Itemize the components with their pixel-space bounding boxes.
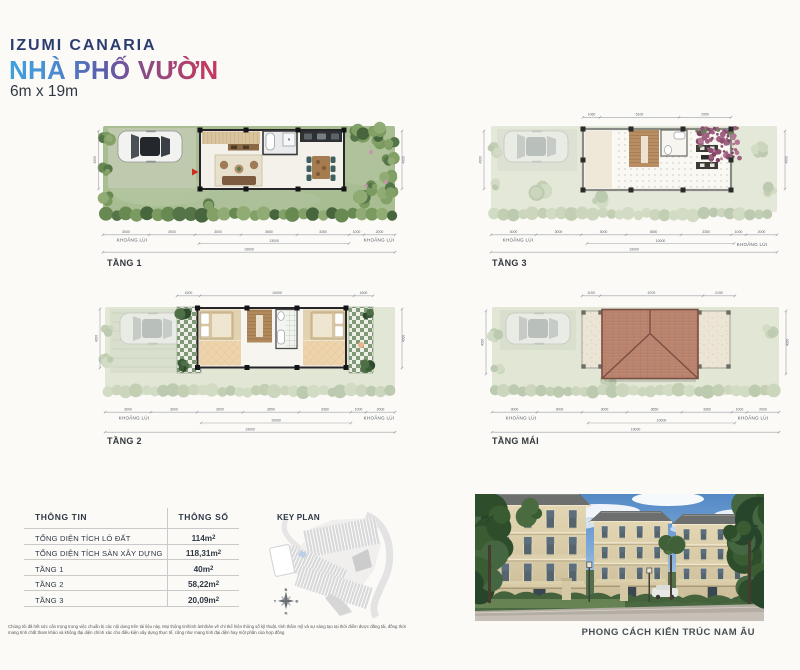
svg-text:3000: 3000 xyxy=(511,408,519,412)
svg-text:3000: 3000 xyxy=(601,408,609,412)
svg-text:1000: 1000 xyxy=(736,408,744,412)
svg-text:4000: 4000 xyxy=(93,156,97,164)
svg-text:13000: 13000 xyxy=(269,239,279,243)
svg-text:10000: 10000 xyxy=(272,291,282,295)
svg-text:3650: 3650 xyxy=(651,408,659,412)
svg-text:1000: 1000 xyxy=(353,230,361,234)
svg-text:2000: 2000 xyxy=(376,230,384,234)
svg-text:KHOẢNG LÙI: KHOẢNG LÙI xyxy=(737,241,768,247)
svg-text:4000: 4000 xyxy=(786,339,790,347)
svg-text:3650: 3650 xyxy=(267,408,275,412)
svg-text:3000: 3000 xyxy=(124,408,132,412)
svg-text:KHOẢNG LÙI: KHOẢNG LÙI xyxy=(364,237,395,243)
svg-text:3000: 3000 xyxy=(170,408,178,412)
svg-text:1600: 1600 xyxy=(360,291,368,295)
svg-text:3650: 3650 xyxy=(650,230,658,234)
svg-text:3000: 3000 xyxy=(122,230,130,234)
svg-text:10000: 10000 xyxy=(271,418,281,422)
svg-text:1060: 1060 xyxy=(588,113,596,117)
svg-text:KHOẢNG LÙI: KHOẢNG LÙI xyxy=(506,415,537,421)
svg-text:3350: 3350 xyxy=(319,230,327,234)
svg-text:3360: 3360 xyxy=(703,408,711,412)
svg-text:2000: 2000 xyxy=(759,408,767,412)
svg-text:3000: 3000 xyxy=(168,230,176,234)
svg-text:N: N xyxy=(285,611,288,616)
svg-text:3000: 3000 xyxy=(214,230,222,234)
svg-text:KHOẢNG LÙI: KHOẢNG LÙI xyxy=(364,415,395,421)
svg-text:4000: 4000 xyxy=(95,335,99,343)
svg-text:19000: 19000 xyxy=(245,428,255,432)
svg-text:6700: 6700 xyxy=(648,291,656,295)
svg-text:1000: 1000 xyxy=(735,230,743,234)
svg-text:KHOẢNG LÙI: KHOẢNG LÙI xyxy=(738,415,769,421)
svg-text:T: T xyxy=(274,599,277,604)
svg-text:2950: 2950 xyxy=(701,113,709,117)
svg-text:1500: 1500 xyxy=(185,291,193,295)
svg-text:KHOẢNG LÙI: KHOẢNG LÙI xyxy=(503,237,534,243)
svg-text:3650: 3650 xyxy=(265,230,273,234)
svg-text:TẦNG 2: TẦNG 2 xyxy=(107,436,142,446)
svg-text:3000: 3000 xyxy=(510,230,518,234)
svg-text:KHOẢNG LÙI: KHOẢNG LÙI xyxy=(117,237,148,243)
svg-text:10000: 10000 xyxy=(657,418,667,422)
svg-text:TẦNG 3: TẦNG 3 xyxy=(492,258,527,268)
svg-text:19000: 19000 xyxy=(629,248,639,252)
svg-text:19000: 19000 xyxy=(631,428,641,432)
svg-text:KHOẢNG LÙI: KHOẢNG LÙI xyxy=(119,415,150,421)
svg-text:4000: 4000 xyxy=(481,339,485,347)
svg-text:B: B xyxy=(285,587,288,592)
svg-text:3000: 3000 xyxy=(600,230,608,234)
svg-text:3000: 3000 xyxy=(556,408,564,412)
svg-text:4000: 4000 xyxy=(402,335,406,343)
svg-text:3000: 3000 xyxy=(555,230,563,234)
svg-text:4000: 4000 xyxy=(785,156,789,164)
svg-text:4000: 4000 xyxy=(402,156,406,164)
svg-text:TẦNG 1: TẦNG 1 xyxy=(107,258,142,268)
svg-text:5100: 5100 xyxy=(636,113,644,117)
svg-text:10000: 10000 xyxy=(656,239,666,243)
svg-text:3360: 3360 xyxy=(321,408,329,412)
svg-text:2000: 2000 xyxy=(377,408,385,412)
svg-text:4000: 4000 xyxy=(479,156,483,164)
svg-text:2150: 2150 xyxy=(715,291,723,295)
svg-text:3350: 3350 xyxy=(702,230,710,234)
svg-text:TẦNG MÁI: TẦNG MÁI xyxy=(492,436,539,446)
svg-text:1000: 1000 xyxy=(355,408,363,412)
svg-text:Đ: Đ xyxy=(296,599,299,604)
svg-text:19000: 19000 xyxy=(244,248,254,252)
svg-text:3000: 3000 xyxy=(216,408,224,412)
svg-text:2000: 2000 xyxy=(758,230,766,234)
svg-text:1150: 1150 xyxy=(587,291,595,295)
